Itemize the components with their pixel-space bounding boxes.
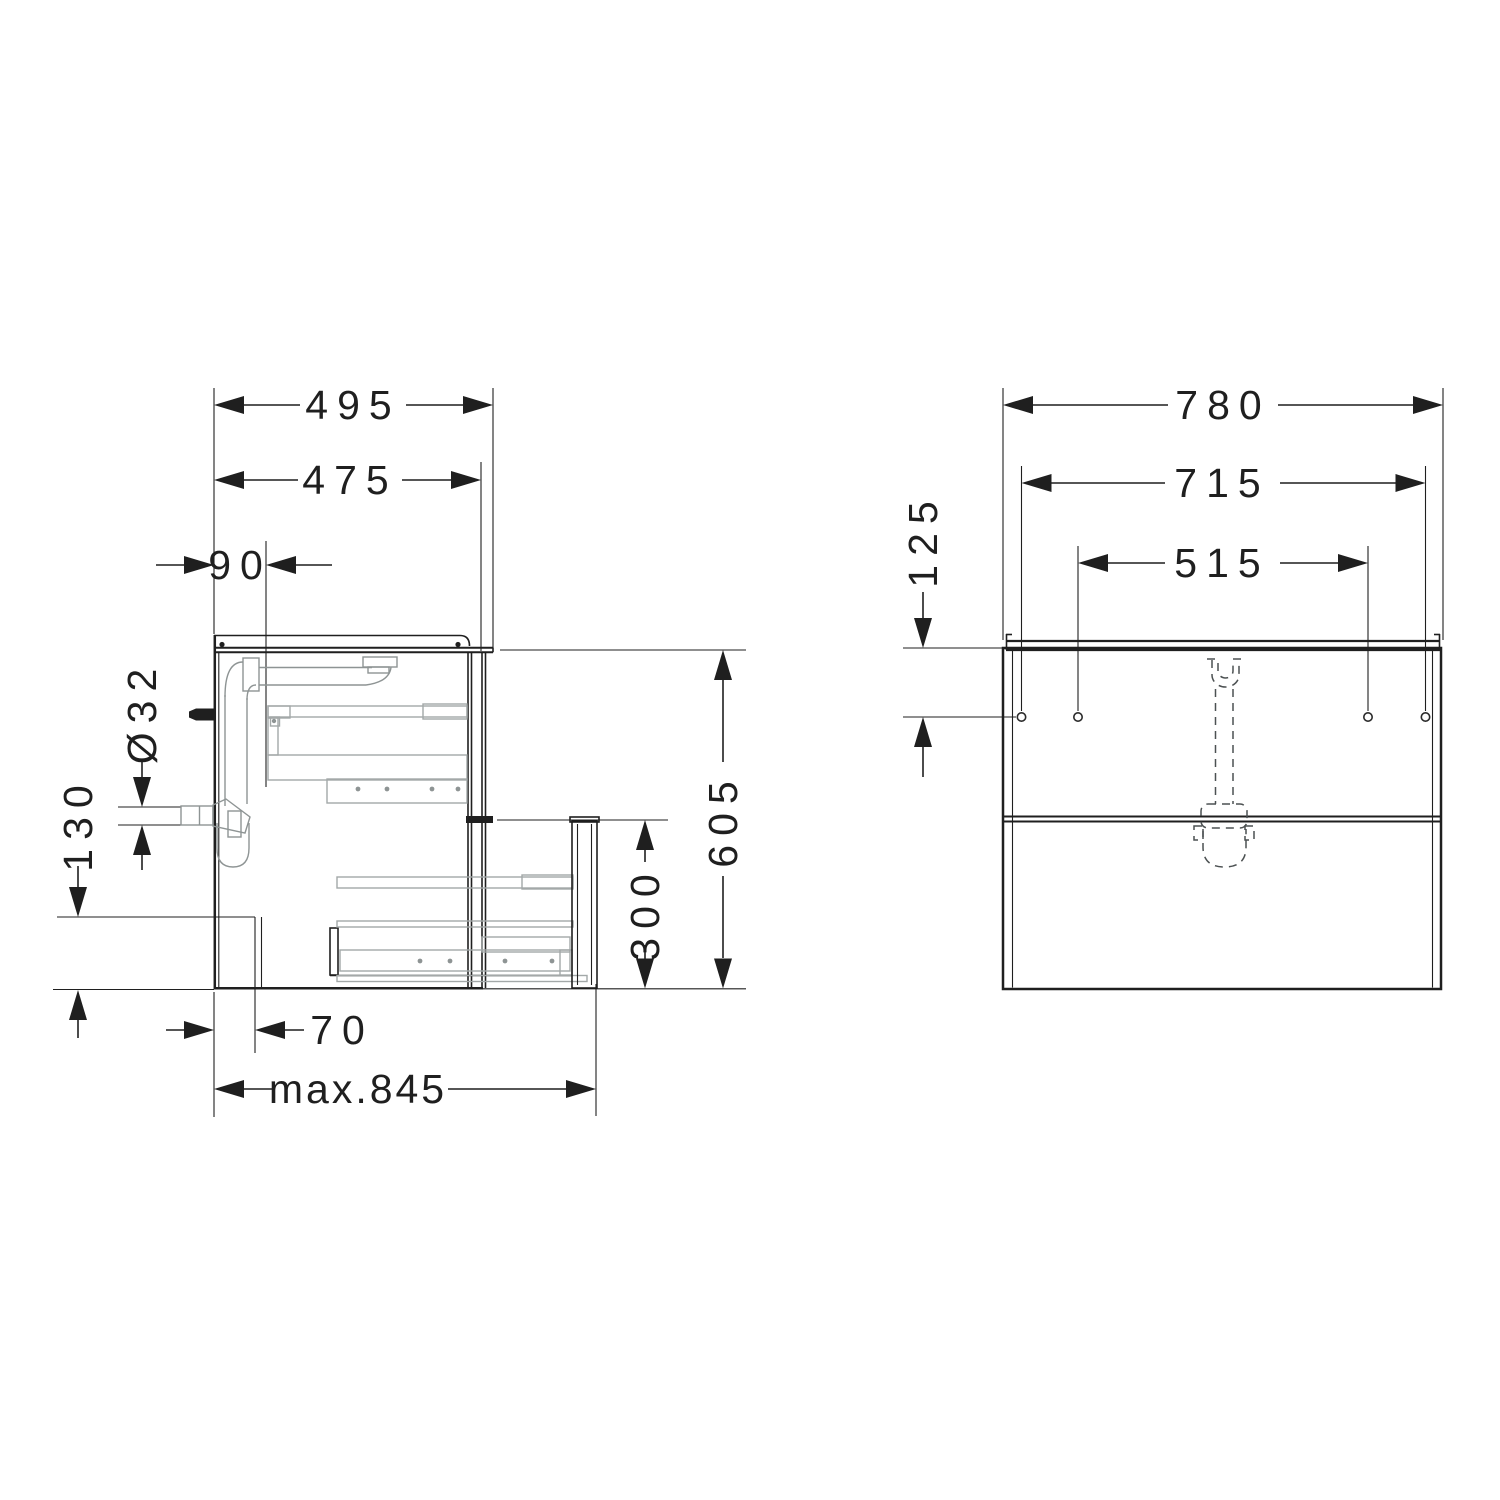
dim-drawer-front-height: 300 [497, 820, 668, 989]
dim-drain-diameter: Ø32 [118, 660, 181, 870]
side-view: 495 475 90 Ø32 [53, 382, 746, 1117]
dim-holes-top-offset: 125 [900, 492, 1016, 777]
dim-label-130: 130 [55, 776, 101, 871]
front-clip [466, 816, 493, 823]
dim-drain-offset: 90 [156, 541, 332, 787]
dim-label-495: 495 [305, 382, 400, 428]
dim-label-300: 300 [622, 865, 668, 960]
cabinet-side-carcass [214, 635, 493, 989]
cabinet-front-outline [1003, 648, 1441, 989]
hidden-drain-pipe-dashed [1194, 659, 1254, 867]
drawer-front-panel [572, 821, 597, 988]
drawer-back-panel [330, 928, 338, 975]
mounting-hole-1 [1017, 713, 1025, 721]
dim-label-90: 90 [208, 542, 272, 588]
trap-bowl [217, 823, 249, 867]
technical-drawing-page: 495 475 90 Ø32 [0, 0, 1500, 1500]
dim-label-max845: max.845 [269, 1066, 447, 1112]
dim-label-70: 70 [310, 1007, 374, 1053]
dim-label-715: 715 [1174, 460, 1269, 506]
trap-bowl-dashed [1203, 829, 1246, 867]
dim-holes-inner: 515 [1078, 540, 1368, 711]
vanity-installation-drawing: 495 475 90 Ø32 [0, 0, 1500, 1500]
wall-anchor-bolt [189, 709, 214, 721]
dim-label-125: 125 [900, 492, 946, 587]
dim-depth-total: 495 [214, 382, 493, 648]
lower-drawer-open [255, 817, 599, 988]
dim-label-475: 475 [302, 457, 397, 503]
dim-pullout-depth: max.845 [214, 984, 596, 1117]
dim-width-total: 780 [1003, 382, 1443, 640]
mounting-hole-3 [1364, 713, 1372, 721]
dim-recess-depth: 70 [166, 980, 374, 1053]
front-view: 780 715 515 [900, 382, 1443, 989]
basin-waste-flange [363, 657, 397, 667]
dim-recess-height: 130 [53, 776, 255, 1038]
upper-drawer-runners [268, 704, 467, 803]
dim-label-515: 515 [1174, 540, 1269, 586]
dim-label-605: 605 [700, 772, 746, 867]
console-screw-right [455, 642, 460, 647]
wall-outlet-pipe [181, 806, 213, 825]
dim-label-780: 780 [1175, 382, 1270, 428]
trap-dip-tube [228, 811, 241, 837]
mounting-hole-2 [1074, 713, 1082, 721]
drain-trap-assembly [181, 657, 397, 867]
dim-height-total: 605 [483, 650, 746, 989]
console-screw-left [219, 642, 224, 647]
mounting-hole-4 [1421, 713, 1429, 721]
dim-label-d32: Ø32 [119, 660, 165, 765]
